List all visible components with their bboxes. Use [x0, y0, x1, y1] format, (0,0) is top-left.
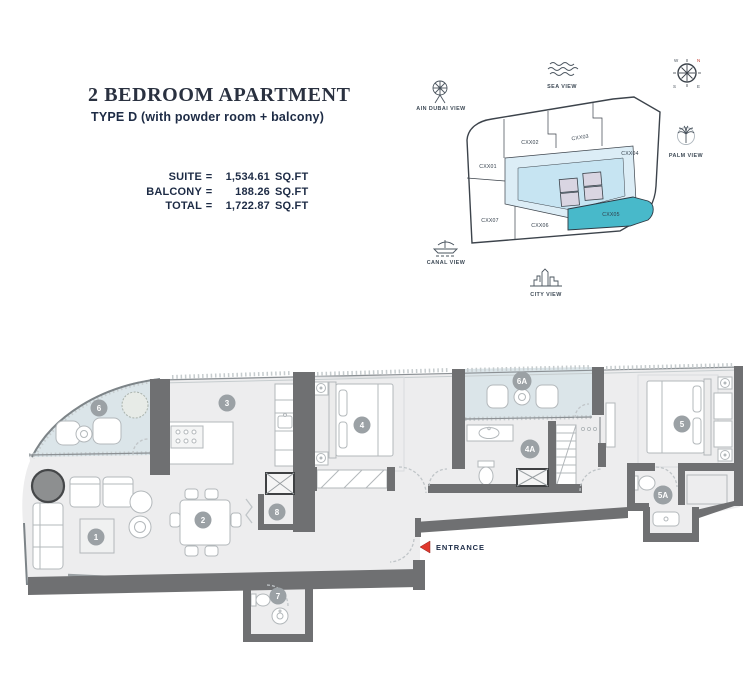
unit-label-cxx05: CXX05	[602, 212, 619, 218]
view-label: AIN DUBAI VIEW	[416, 106, 466, 112]
svg-text:E: E	[697, 84, 700, 89]
unit-label-cxx04: CXX04	[621, 151, 638, 157]
sofa	[33, 503, 63, 569]
view-ain-dubai: AIN DUBAI VIEW	[416, 81, 466, 112]
area-row-total: TOTAL = 1,722.87 SQ.FT	[130, 199, 308, 214]
wardrobe-4	[317, 470, 387, 488]
area-value: 1,534.61	[216, 170, 270, 185]
kitchen-cabinets	[275, 384, 295, 466]
area-row-balcony: BALCONY = 188.26 SQ.FT	[130, 185, 308, 200]
room-marker-6: 6	[91, 400, 108, 417]
area-label: SUITE	[130, 170, 202, 185]
svg-text:5: 5	[680, 420, 685, 429]
column	[32, 470, 64, 502]
entrance-arrow-icon	[420, 541, 430, 553]
area-table: SUITE = 1,534.61 SQ.FT BALCONY = 188.26 …	[130, 170, 308, 214]
console	[606, 403, 615, 447]
lounge-chair	[129, 516, 151, 538]
room-marker-5: 5	[674, 416, 691, 433]
svg-text:2: 2	[201, 516, 206, 525]
view-sea: SEA VIEW	[547, 63, 578, 91]
plant	[122, 392, 148, 418]
entrance: ENTRANCE	[420, 541, 485, 553]
area-label: TOTAL	[130, 199, 202, 214]
svg-text:3: 3	[225, 399, 230, 408]
yacht-icon	[434, 240, 457, 256]
svg-text:5A: 5A	[658, 491, 668, 500]
balcony-6-floor	[32, 379, 160, 457]
area-value: 188.26	[216, 185, 270, 200]
page-title: 2 BEDROOM APARTMENT	[88, 84, 351, 107]
svg-text:6A: 6A	[517, 377, 527, 386]
area-value: 1,722.87	[216, 199, 270, 214]
view-label: CITY VIEW	[530, 292, 562, 298]
svg-text:1: 1	[94, 533, 99, 542]
skyline-icon	[530, 269, 562, 286]
palm-tree-icon	[678, 126, 695, 145]
area-label: BALCONY	[130, 185, 202, 200]
room-marker-2: 2	[195, 512, 212, 529]
entrance-label: ENTRANCE	[436, 543, 485, 552]
page-subtitle: TYPE D (with powder room + balcony)	[91, 110, 324, 124]
side-table	[130, 491, 152, 513]
svg-text:7: 7	[276, 592, 281, 601]
unit-label-cxx02: CXX02	[521, 140, 538, 146]
area-unit: SQ.FT	[275, 199, 308, 214]
kitchen-island	[167, 422, 233, 464]
key-plan: W N S E AIN DUBAI VIEW SEA VIEW	[408, 38, 752, 308]
compass-icon: W N S E	[673, 58, 701, 89]
area-unit: SQ.FT	[275, 185, 308, 200]
room-marker-4: 4	[354, 417, 371, 434]
unit-label-cxx01: CXX01	[479, 164, 496, 170]
svg-text:S: S	[673, 84, 676, 89]
area-unit: SQ.FT	[275, 170, 308, 185]
room-marker-3: 3	[219, 395, 236, 412]
room-marker-7: 7	[270, 588, 287, 605]
view-canal: CANAL VIEW	[427, 240, 466, 266]
svg-text:4: 4	[360, 421, 365, 430]
room-marker-8: 8	[269, 504, 286, 521]
waves-icon	[548, 63, 578, 76]
room-marker-5a: 5A	[654, 486, 673, 505]
ferris-wheel-icon	[433, 81, 447, 103]
building-footprint: CXX01 CXX02 CXX03 CXX04 CXX05 CXX06 CXX0…	[467, 97, 660, 243]
area-row-suite: SUITE = 1,534.61 SQ.FT	[130, 170, 308, 185]
room-marker-4a: 4A	[521, 440, 540, 459]
svg-text:6: 6	[97, 404, 102, 413]
kitchen-sink	[278, 416, 292, 428]
unit-label-cxx07: CXX07	[481, 218, 498, 224]
room-marker-6a: 6A	[513, 372, 532, 391]
view-city: CITY VIEW	[530, 269, 562, 298]
unit-label-cxx06: CXX06	[531, 223, 548, 229]
room-marker-1: 1	[88, 529, 105, 546]
svg-text:N: N	[697, 58, 700, 63]
svg-text:8: 8	[275, 508, 280, 517]
equals-sign: =	[202, 170, 216, 185]
view-palm: PALM VIEW	[669, 126, 704, 159]
view-label: CANAL VIEW	[427, 260, 466, 266]
view-label: PALM VIEW	[669, 153, 704, 159]
floorplan-page: 2 BEDROOM APARTMENT TYPE D (with powder …	[0, 0, 752, 675]
floor-plan: 1 2 3 4 5 6 7 8 4A 5A 6A	[0, 355, 752, 675]
svg-text:W: W	[674, 58, 679, 63]
equals-sign: =	[202, 199, 216, 214]
view-label: SEA VIEW	[547, 84, 577, 90]
svg-text:4A: 4A	[525, 445, 535, 454]
equals-sign: =	[202, 185, 216, 200]
